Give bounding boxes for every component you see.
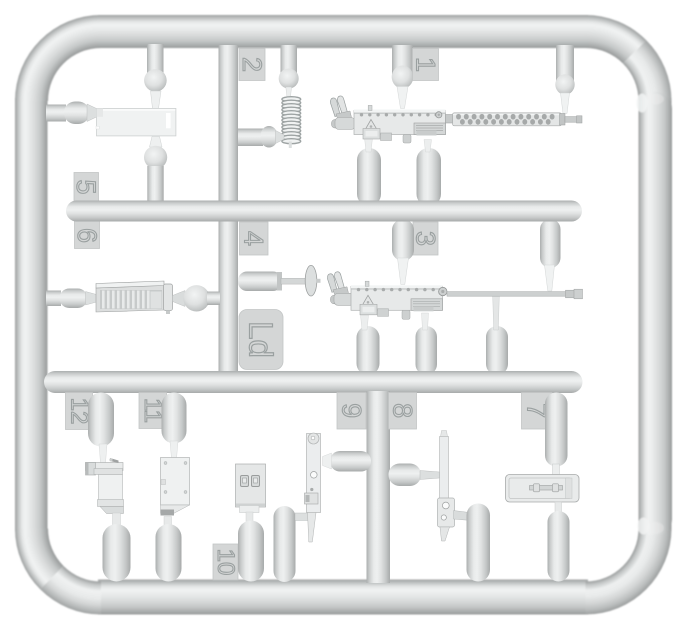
svg-text:5: 5 xyxy=(71,179,101,194)
svg-text:10: 10 xyxy=(212,549,239,576)
svg-text:8: 8 xyxy=(388,403,418,418)
svg-text:2: 2 xyxy=(237,57,267,72)
svg-text:4: 4 xyxy=(239,231,269,246)
svg-text:3: 3 xyxy=(411,231,441,246)
svg-text:9: 9 xyxy=(337,403,367,418)
svg-text:1: 1 xyxy=(411,57,441,72)
svg-text:6: 6 xyxy=(72,228,102,243)
svg-text:Ld: Ld xyxy=(243,321,280,358)
